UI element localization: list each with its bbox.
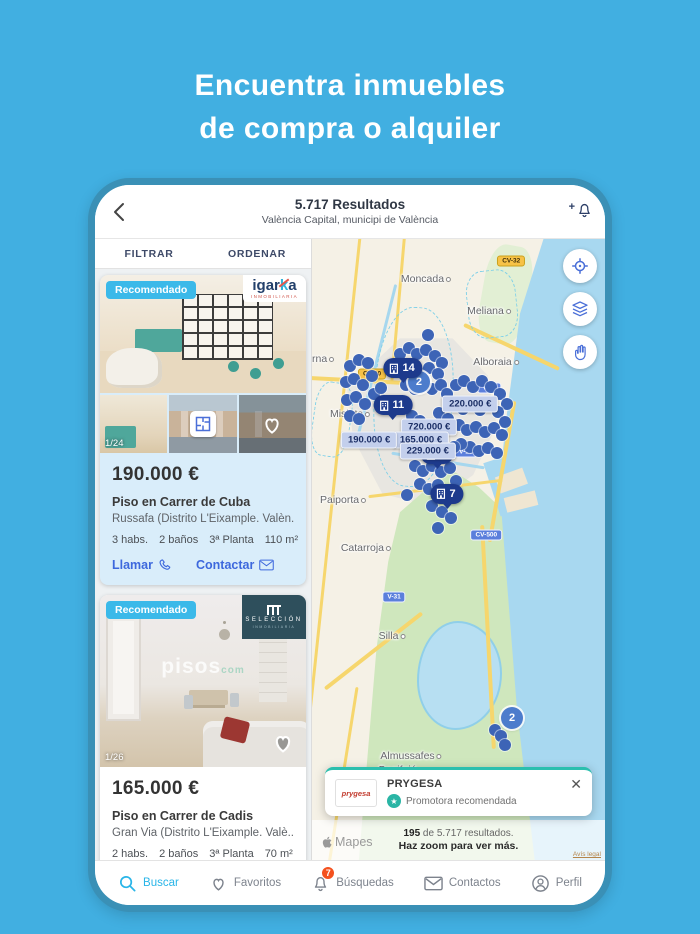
photo-thumbnails: 1/24 [100, 395, 306, 453]
map-place-label: Paiporta [320, 494, 366, 506]
map-cluster-circle[interactable]: 2 [501, 707, 523, 729]
tab-perfil[interactable]: Perfil [531, 874, 582, 893]
thumbnail-favorite[interactable] [239, 395, 306, 453]
create-alert-button[interactable]: + [569, 200, 593, 219]
property-features: 2 habs. 2 baños 3ª Planta 70 m² [112, 848, 294, 860]
page-title-line1: Encuentra inmuebles [0, 64, 700, 107]
map-dot[interactable] [375, 382, 387, 394]
map[interactable]: prygesa PRYGESA ★ Promotora recomendada … [312, 239, 605, 860]
filter-button[interactable]: FILTRAR [95, 239, 203, 268]
chevron-left-icon [113, 202, 125, 222]
thumbnail-1[interactable]: 1/24 [100, 395, 167, 453]
bell-icon [576, 200, 593, 219]
promo-name: PRYGESA [387, 778, 517, 790]
building-icon [267, 605, 281, 615]
map-dot[interactable] [366, 370, 378, 382]
contact-button[interactable]: Contactar [196, 558, 274, 572]
property-price: 190.000 € [112, 464, 294, 486]
photo-counter: 1/24 [105, 438, 124, 449]
photo-decor [228, 361, 239, 372]
header-titles: 5.717 Resultados València Capital, munic… [262, 197, 438, 226]
map-dot[interactable] [422, 329, 434, 341]
property-location: Gran Via (Distrito L'Eixample. Valè... [112, 827, 294, 839]
photo-decor [219, 629, 230, 640]
road-badge: V-31 [382, 591, 405, 602]
photo-decor [230, 693, 239, 707]
map-dot[interactable] [359, 398, 371, 410]
map-place-label: Silla [379, 630, 406, 642]
envelope-icon [424, 876, 443, 891]
promo-card[interactable]: prygesa PRYGESA ★ Promotora recomendada … [325, 767, 592, 816]
close-icon[interactable]: ✕ [570, 777, 582, 791]
map-dot[interactable] [362, 357, 374, 369]
property-price: 165.000 € [112, 778, 294, 800]
envelope-icon [259, 559, 274, 571]
draw-hand-icon [571, 343, 589, 361]
map-dot[interactable] [491, 447, 503, 459]
map-place-label: Almussafes [380, 750, 441, 762]
recommended-badge: Recomendado [106, 601, 196, 619]
tab-busquedas[interactable]: 7 Búsquedas [311, 873, 394, 893]
property-cards: Recomendado igarka INMOBILIARIA [95, 269, 311, 860]
map-cluster-pin[interactable]: 11 [374, 395, 413, 415]
property-title: Piso en Carrer de Cuba [112, 495, 294, 509]
building-icon [437, 488, 446, 499]
sort-button[interactable]: ORDENAR [203, 239, 311, 268]
agency-logo-igarka: igarka INMOBILIARIA [243, 275, 306, 302]
tab-favoritos[interactable]: Favoritos [209, 874, 281, 892]
phone-icon [158, 558, 172, 572]
recommended-badge: Recomendado [106, 281, 196, 299]
bell-icon: 7 [311, 873, 330, 893]
photo-decor [184, 695, 193, 709]
property-location: Russafa (Distrito L'Eixample. Valèn... [112, 513, 294, 525]
app-header: 5.717 Resultados València Capital, munic… [95, 185, 605, 239]
layers-icon [571, 300, 589, 318]
map-dot[interactable] [499, 739, 511, 751]
map-dot[interactable] [353, 413, 365, 425]
map-cluster-pin[interactable]: 14 [383, 358, 422, 378]
property-info: 165.000 € Piso en Carrer de Cadis Gran V… [100, 767, 306, 860]
heart-icon [260, 413, 284, 435]
tab-buscar[interactable]: Buscar [118, 874, 179, 893]
page-title-line2: de compra o alquiler [0, 107, 700, 150]
map-place-label: Catarroja [341, 542, 391, 554]
person-icon [531, 874, 550, 893]
photo-counter: 1/26 [105, 752, 124, 763]
map-price-pin[interactable]: 220.000 € [442, 395, 498, 412]
agency-logo-seleccion: SELECCIÓN INMOBILIARIA [242, 595, 306, 639]
map-dot[interactable] [445, 512, 457, 524]
results-count: 5.717 Resultados [262, 197, 438, 212]
phone-frame: 5.717 Resultados València Capital, munic… [88, 178, 612, 912]
zoom-hint: Haz zoom para ver más. [399, 840, 519, 852]
property-features: 3 habs. 2 baños 3ª Planta 110 m² [112, 534, 294, 546]
apple-logo-icon [321, 836, 332, 849]
photo-decor [216, 411, 223, 437]
favorite-button[interactable] [270, 730, 296, 759]
map-dot[interactable] [496, 429, 508, 441]
map-price-pin[interactable]: 229.000 € [400, 443, 456, 460]
results-summary: 195 de 5.717 resultados. [403, 828, 513, 839]
map-dot[interactable] [499, 416, 511, 428]
favorite-overlay [239, 395, 306, 453]
map-cluster-pin[interactable]: 7 [431, 484, 464, 504]
search-icon [118, 874, 137, 893]
floorplan-icon [190, 411, 216, 437]
property-card-2[interactable]: Recomendado SELECCIÓN INMOBILIARIA [100, 595, 306, 860]
back-button[interactable] [107, 200, 131, 224]
star-icon: ★ [387, 794, 401, 808]
results-list-panel: FILTRAR ORDENAR Recomendado igarka INMOB… [95, 239, 312, 860]
heart-icon [270, 730, 296, 754]
pisos-watermark: pisoscom [161, 655, 244, 679]
promo-body: PRYGESA ★ Promotora recomendada [387, 778, 517, 808]
page-title: Encuentra inmuebles de compra o alquiler [0, 64, 700, 150]
map-place-label: Moncada [401, 273, 451, 285]
map-controls [563, 249, 597, 369]
photo-decor [189, 690, 228, 705]
property-actions: Llamar Contactar [112, 558, 294, 572]
map-place-label: erna [312, 353, 334, 365]
locate-button[interactable] [563, 249, 597, 283]
tab-contactos[interactable]: Contactos [424, 876, 501, 891]
thumbnail-floorplan[interactable] [169, 395, 236, 453]
plus-icon: + [569, 201, 575, 213]
map-price-pin[interactable]: 190.000 € [341, 431, 397, 448]
road-badge: CV-500 [470, 529, 502, 540]
map-place-label: Meliana [467, 305, 511, 317]
property-info: 190.000 € Piso en Carrer de Cuba Russafa… [100, 453, 306, 585]
prygesa-logo: prygesa [335, 779, 377, 807]
promo-tag: ★ Promotora recomendada [387, 794, 517, 808]
search-location: València Capital, municipi de València [262, 214, 438, 226]
building-icon [389, 363, 398, 374]
photo-decor [182, 294, 273, 360]
property-title: Piso en Carrer de Cadis [112, 809, 294, 823]
map-dot[interactable] [432, 522, 444, 534]
property-card-1[interactable]: Recomendado igarka INMOBILIARIA [100, 275, 306, 585]
bottom-tab-bar: Buscar Favoritos 7 Búsquedas Contactos [95, 860, 605, 905]
road-badge: CV-32 [497, 255, 525, 266]
map-dot[interactable] [401, 489, 413, 501]
photo-decor [181, 411, 188, 437]
map-dot[interactable] [357, 379, 369, 391]
photo-decor [106, 614, 141, 721]
locate-icon [571, 257, 589, 275]
layers-button[interactable] [563, 292, 597, 326]
photo-decor [106, 348, 162, 388]
draw-area-button[interactable] [563, 335, 597, 369]
map-attribution: Mapes [321, 835, 373, 849]
content: FILTRAR ORDENAR Recomendado igarka INMOB… [95, 239, 605, 860]
map-dot[interactable] [436, 357, 448, 369]
building-icon [380, 400, 389, 411]
notification-badge: 7 [321, 866, 335, 880]
map-place-label: Alboraia [473, 356, 519, 368]
legal-link[interactable]: Avís legal [573, 851, 601, 858]
list-toolbar: FILTRAR ORDENAR [95, 239, 311, 269]
heart-icon [209, 874, 228, 892]
call-button[interactable]: Llamar [112, 558, 172, 572]
